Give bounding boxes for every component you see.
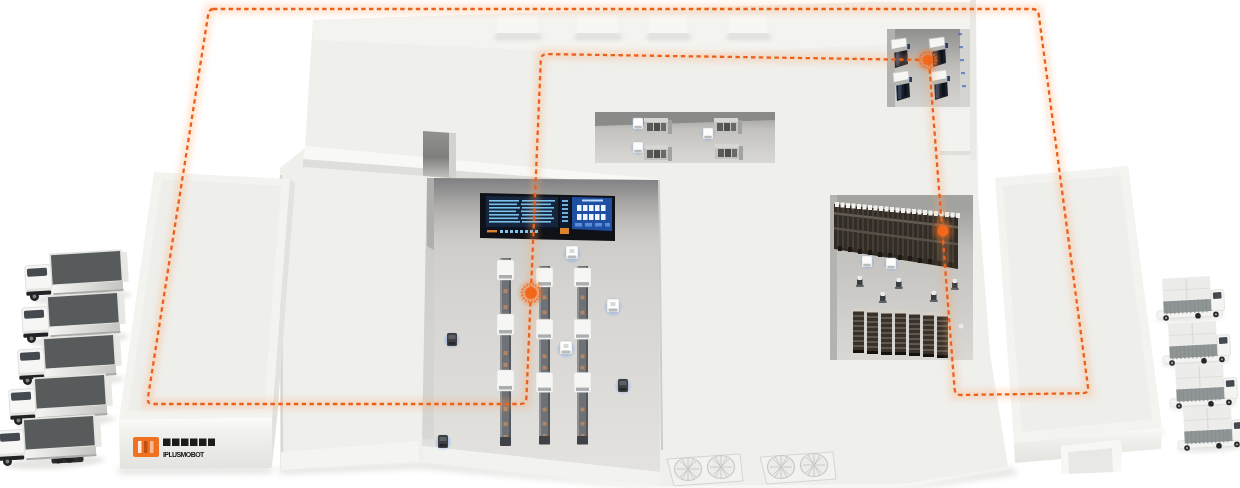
svg-text:IPLUSMOBOT: IPLUSMOBOT <box>163 451 205 458</box>
